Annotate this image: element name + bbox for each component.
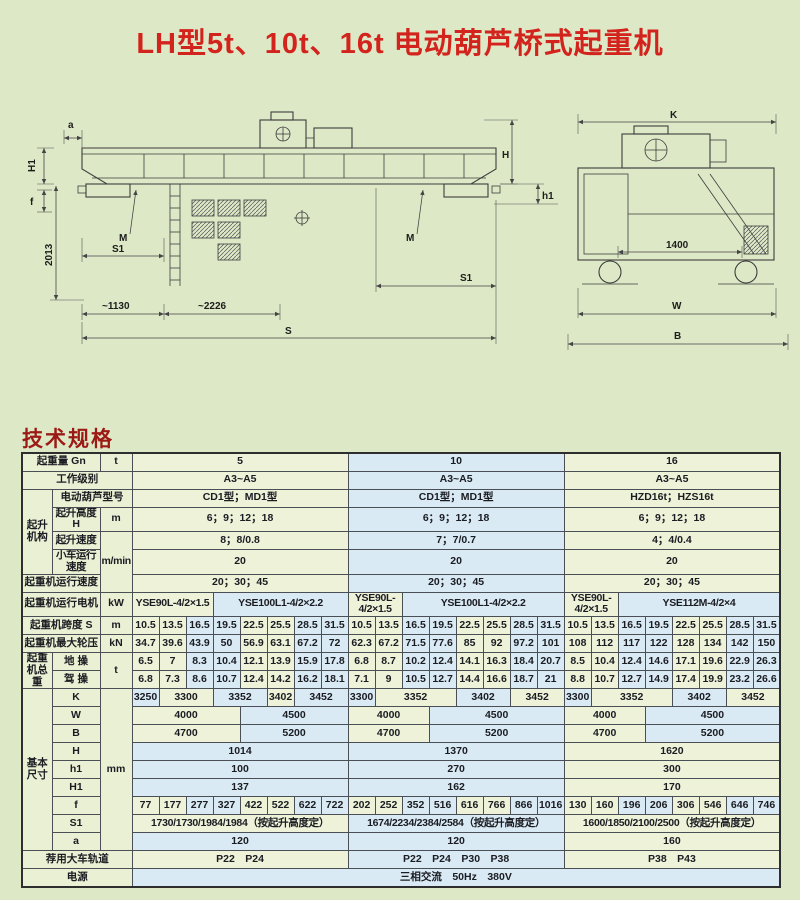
value-cell: 14.2 — [267, 671, 294, 689]
value-cell: 4500 — [645, 707, 780, 725]
row-dim-H1: H1137162170 — [22, 779, 780, 797]
row-dim-K: 基本尺寸Kmm325033003352340234523300335234023… — [22, 689, 780, 707]
value-cell: 26.6 — [753, 671, 780, 689]
crane-side-view-drawing: M M a H1 f 2013 — [24, 108, 561, 366]
label-cell: h1 — [52, 761, 100, 779]
row-dim-B: B470052004700520047005200 — [22, 725, 780, 743]
value-cell: 8；8/0.8 — [132, 532, 348, 550]
value-cell: 16.6 — [483, 671, 510, 689]
value-cell: 28.5 — [294, 617, 321, 635]
m-label-right: M — [406, 233, 414, 244]
end-view-wheels — [582, 261, 774, 284]
value-cell: 15.9 — [294, 653, 321, 671]
value-cell: 8.5 — [564, 653, 591, 671]
dim-label-s1-right: S1 — [460, 273, 473, 284]
value-cell: 306 — [672, 797, 699, 815]
label-cell: 起重量 Gn — [22, 453, 100, 471]
value-cell: 10.2 — [402, 653, 429, 671]
ladder-and-panels — [170, 184, 266, 286]
label-cell: 起升机构 — [22, 489, 52, 574]
value-cell: 67.2 — [375, 635, 402, 653]
row-span: 起重机跨度 Sm10.513.516.519.522.525.528.531.5… — [22, 617, 780, 635]
value-cell: 5200 — [429, 725, 564, 743]
value-cell: 71.5 — [402, 635, 429, 653]
value-cell: 28.5 — [726, 617, 753, 635]
value-cell: 7；7/0.7 — [348, 532, 564, 550]
value-cell: 28.5 — [510, 617, 537, 635]
value-cell: 77 — [132, 797, 159, 815]
value-cell: 100 — [132, 761, 348, 779]
value-cell: 4700 — [348, 725, 429, 743]
row-hoist-model: 起升机构电动葫芦型号CD1型；MD1型CD1型；MD1型HZD16t；HZS16… — [22, 489, 780, 507]
value-cell: 9 — [375, 671, 402, 689]
value-cell: 7.3 — [159, 671, 186, 689]
value-cell: 18.4 — [510, 653, 537, 671]
value-cell: 12.4 — [618, 653, 645, 671]
spec-table: 起重量 Gnt51016工作级别A3~A5A3~A5A3~A5起升机构电动葫芦型… — [21, 452, 781, 888]
dim-label-w: W — [672, 301, 682, 312]
value-cell: 10.4 — [591, 653, 618, 671]
value-cell: 92 — [483, 635, 510, 653]
row-dim-H: H101413701620 — [22, 743, 780, 761]
value-cell: 646 — [726, 797, 753, 815]
value-cell: 3300 — [348, 689, 375, 707]
dimension-B: B — [568, 331, 788, 350]
value-cell: 128 — [672, 635, 699, 653]
unit-cell: m/min — [100, 532, 132, 593]
capacity-5t: 5 — [132, 453, 348, 471]
label-cell: 起重机跨度 S — [22, 617, 100, 635]
dim-label-1400: 1400 — [666, 240, 689, 251]
value-cell: 252 — [375, 797, 402, 815]
label-cell: a — [52, 833, 100, 851]
value-cell: 31.5 — [321, 617, 348, 635]
dimension-H1-left: H1 — [27, 148, 54, 184]
unit-cell: m — [100, 617, 132, 635]
center-mark-icon — [294, 210, 310, 226]
value-cell: 31.5 — [753, 617, 780, 635]
dimension-S: S — [82, 200, 496, 344]
value-cell: 12.7 — [618, 671, 645, 689]
value-cell: 18.1 — [321, 671, 348, 689]
dimension-H: H — [484, 120, 518, 184]
value-cell: 108 — [564, 635, 591, 653]
dim-label-h1-small: h1 — [542, 191, 554, 202]
capacity-10t: 10 — [348, 453, 564, 471]
value-cell: 19.5 — [429, 617, 456, 635]
value-cell: 20 — [132, 550, 348, 575]
value-cell: 4；4/0.4 — [564, 532, 780, 550]
value-cell: 134 — [699, 635, 726, 653]
value-cell: 19.6 — [699, 653, 726, 671]
label-cell: B — [52, 725, 100, 743]
dim-label-b: B — [674, 331, 681, 342]
value-cell: 10.7 — [591, 671, 618, 689]
label-cell: 起升速度 — [52, 532, 100, 550]
row-dim-S1: S11730/1730/1984/1984（按起升高度定）1674/2234/2… — [22, 815, 780, 833]
value-cell: 1730/1730/1984/1984（按起升高度定） — [132, 815, 348, 833]
value-cell: 10.5 — [132, 617, 159, 635]
value-cell: 4700 — [564, 725, 645, 743]
dimension-a: a — [64, 120, 82, 148]
dim-label-s1-left: S1 — [112, 244, 125, 255]
label-cell: W — [52, 707, 100, 725]
value-cell: A3~A5 — [564, 471, 780, 489]
value-cell: 8.7 — [375, 653, 402, 671]
value-cell: 22.5 — [456, 617, 483, 635]
label-cell: 驾 操 — [52, 671, 100, 689]
value-cell: 1016 — [537, 797, 564, 815]
value-cell: 20；30；45 — [564, 574, 780, 592]
value-cell: 6.5 — [132, 653, 159, 671]
value-cell: A3~A5 — [348, 471, 564, 489]
value-cell: 62.3 — [348, 635, 375, 653]
dimension-h1-small: h1 — [494, 184, 558, 204]
label-cell: 荐用大车轨道 — [22, 851, 132, 869]
value-cell: 17.4 — [672, 671, 699, 689]
label-cell: 工作级别 — [22, 471, 132, 489]
value-cell: 3300 — [564, 689, 591, 707]
value-cell: 327 — [213, 797, 240, 815]
value-cell: 3402 — [672, 689, 726, 707]
value-cell: 10.5 — [348, 617, 375, 635]
unit-cell: kN — [100, 635, 132, 653]
value-cell: 10.7 — [213, 671, 240, 689]
value-cell: 196 — [618, 797, 645, 815]
value-cell: 3402 — [267, 689, 294, 707]
value-cell: 746 — [753, 797, 780, 815]
value-cell: 10.4 — [213, 653, 240, 671]
value-cell: 67.2 — [294, 635, 321, 653]
value-cell: 142 — [726, 635, 753, 653]
label-cell: 基本尺寸 — [22, 689, 52, 851]
value-cell: 22.5 — [672, 617, 699, 635]
value-cell: 4700 — [132, 725, 240, 743]
value-cell: 19.5 — [213, 617, 240, 635]
value-cell: 722 — [321, 797, 348, 815]
value-cell: 5200 — [240, 725, 348, 743]
value-cell: YSE112M-4/2×4 — [618, 592, 780, 617]
label-cell: K — [52, 689, 100, 707]
value-cell: YSE90L-4/2×1.5 — [348, 592, 402, 617]
value-cell: 12.1 — [240, 653, 267, 671]
value-cell: 6；9；12；18 — [564, 507, 780, 532]
dimension-K: K — [578, 110, 776, 134]
technical-drawings: M M a H1 f 2013 — [0, 108, 800, 373]
value-cell: A3~A5 — [132, 471, 348, 489]
value-cell: 3452 — [726, 689, 780, 707]
value-cell: 3402 — [456, 689, 510, 707]
bridge-girder — [82, 148, 496, 184]
unit-cell: mm — [100, 689, 132, 851]
value-cell: 8.8 — [564, 671, 591, 689]
m-mark-left: M — [119, 190, 136, 244]
value-cell: 5200 — [645, 725, 780, 743]
end-view-hoist — [622, 126, 726, 168]
value-cell: 17.1 — [672, 653, 699, 671]
value-cell: YSE90L-4/2×1.5 — [564, 592, 618, 617]
value-cell: 19.5 — [645, 617, 672, 635]
row-dim-f: f771772773274225226227222022523525166167… — [22, 797, 780, 815]
value-cell: 22.9 — [726, 653, 753, 671]
unit-cell: m — [100, 507, 132, 532]
value-cell: 162 — [348, 779, 564, 797]
value-cell: 120 — [132, 833, 348, 851]
value-cell: 117 — [618, 635, 645, 653]
value-cell: 4500 — [429, 707, 564, 725]
value-cell: 6.8 — [348, 653, 375, 671]
dim-label-k: K — [670, 110, 678, 121]
value-cell: 14.1 — [456, 653, 483, 671]
row-rail: 荐用大车轨道P22 P24P22 P24 P30 P38P38 P43 — [22, 851, 780, 869]
value-cell: YSE100L1-4/2×2.2 — [402, 592, 564, 617]
dim-label-s: S — [285, 326, 292, 337]
value-cell: 3352 — [375, 689, 456, 707]
value-cell: 16.2 — [294, 671, 321, 689]
value-cell: 13.5 — [375, 617, 402, 635]
dimension-S1-right: S1 — [376, 188, 496, 292]
section-title: 技术规格 — [22, 423, 114, 453]
label-cell: H1 — [52, 779, 100, 797]
value-cell: 4000 — [564, 707, 645, 725]
value-cell: 20；30；45 — [348, 574, 564, 592]
dim-label-h: H — [502, 150, 509, 161]
value-cell: 1620 — [564, 743, 780, 761]
value-cell: 137 — [132, 779, 348, 797]
value-cell: 12.4 — [429, 653, 456, 671]
value-cell: 522 — [267, 797, 294, 815]
value-cell: 13.9 — [267, 653, 294, 671]
crane-end-view-drawing: K 1400 — [562, 108, 794, 366]
value-cell: 3300 — [159, 689, 213, 707]
value-cell: 43.9 — [186, 635, 213, 653]
value-cell: 1600/1850/2100/2500（按起升高度定） — [564, 815, 780, 833]
capacity-16t: 16 — [564, 453, 780, 471]
value-cell: YSE90L-4/2×1.5 — [132, 592, 213, 617]
value-cell: 6；9；12；18 — [132, 507, 348, 532]
value-cell: 160 — [591, 797, 618, 815]
value-cell: 4500 — [240, 707, 348, 725]
value-cell: 10.5 — [402, 671, 429, 689]
value-cell: 三相交流 50Hz 380V — [132, 869, 780, 887]
row-lift-speed: 起升速度m/min8；8/0.87；7/0.74；4/0.4 — [22, 532, 780, 550]
value-cell: 12.7 — [429, 671, 456, 689]
value-cell: 14.4 — [456, 671, 483, 689]
row-dim-W: W400045004000450040004500 — [22, 707, 780, 725]
value-cell: 300 — [564, 761, 780, 779]
value-cell: 25.5 — [699, 617, 726, 635]
value-cell: 277 — [186, 797, 213, 815]
value-cell: 26.3 — [753, 653, 780, 671]
value-cell: YSE100L1-4/2×2.2 — [213, 592, 348, 617]
value-cell: 16.5 — [402, 617, 429, 635]
value-cell: 3352 — [591, 689, 672, 707]
row-trolley-speed: 小车运行速度202020 — [22, 550, 780, 575]
value-cell: 16.3 — [483, 653, 510, 671]
dimension-1400: 1400 — [618, 240, 742, 258]
unit-cell: t — [100, 653, 132, 689]
value-cell: 16.5 — [186, 617, 213, 635]
value-cell: 72 — [321, 635, 348, 653]
value-cell: 6；9；12；18 — [348, 507, 564, 532]
value-cell: 23.2 — [726, 671, 753, 689]
value-cell: 63.1 — [267, 635, 294, 653]
value-cell: 31.5 — [537, 617, 564, 635]
value-cell: 12.4 — [240, 671, 267, 689]
value-cell: 352 — [402, 797, 429, 815]
value-cell: 546 — [699, 797, 726, 815]
row-dim-a: a120120160 — [22, 833, 780, 851]
value-cell: 39.6 — [159, 635, 186, 653]
value-cell: 516 — [429, 797, 456, 815]
row-power: 电源三相交流 50Hz 380V — [22, 869, 780, 887]
value-cell: 25.5 — [267, 617, 294, 635]
value-cell: 1014 — [132, 743, 348, 761]
value-cell: 177 — [159, 797, 186, 815]
value-cell: 20；30；45 — [132, 574, 348, 592]
unit-cell: kW — [100, 592, 132, 617]
value-cell: 130 — [564, 797, 591, 815]
row-duty-class: 工作级别A3~A5A3~A5A3~A5 — [22, 471, 780, 489]
dimension-2226: ~2226 — [164, 301, 280, 320]
dim-label-f: f — [30, 197, 34, 208]
value-cell: 85 — [456, 635, 483, 653]
value-cell: 866 — [510, 797, 537, 815]
value-cell: 622 — [294, 797, 321, 815]
value-cell: 14.9 — [645, 671, 672, 689]
value-cell: 1370 — [348, 743, 564, 761]
value-cell: 17.8 — [321, 653, 348, 671]
value-cell: 97.2 — [510, 635, 537, 653]
value-cell: 50 — [213, 635, 240, 653]
value-cell: 34.7 — [132, 635, 159, 653]
unit-cell: t — [100, 453, 132, 471]
row-total-weight-ground: 起重机总重地 操t6.578.310.412.113.915.917.86.88… — [22, 653, 780, 671]
dimension-W: W — [578, 288, 776, 318]
value-cell: 8.3 — [186, 653, 213, 671]
value-cell: 1674/2234/2384/2584（按起升高度定） — [348, 815, 564, 833]
value-cell: 6.8 — [132, 671, 159, 689]
value-cell: 3452 — [294, 689, 348, 707]
value-cell: 20.7 — [537, 653, 564, 671]
dimension-2013: 2013 — [44, 186, 84, 300]
value-cell: 120 — [348, 833, 564, 851]
value-cell: 4000 — [132, 707, 240, 725]
dim-label-2013: 2013 — [44, 243, 55, 266]
value-cell: 101 — [537, 635, 564, 653]
label-cell: 起重机运行速度 — [22, 574, 100, 592]
hoist-trolley — [260, 112, 352, 148]
value-cell: 206 — [645, 797, 672, 815]
value-cell: 16.5 — [618, 617, 645, 635]
value-cell: CD1型；MD1型 — [348, 489, 564, 507]
label-cell: S1 — [52, 815, 100, 833]
label-cell: H — [52, 743, 100, 761]
dim-label-1130: ~1130 — [102, 301, 130, 312]
value-cell: HZD16t；HZS16t — [564, 489, 780, 507]
value-cell: 20 — [564, 550, 780, 575]
value-cell: P38 P43 — [564, 851, 780, 869]
value-cell: 13.5 — [159, 617, 186, 635]
value-cell: 22.5 — [240, 617, 267, 635]
value-cell: 8.6 — [186, 671, 213, 689]
value-cell: 13.5 — [591, 617, 618, 635]
value-cell: 7 — [159, 653, 186, 671]
label-cell: 小车运行速度 — [52, 550, 100, 575]
row-crane-speed: 起重机运行速度20；30；4520；30；4520；30；45 — [22, 574, 780, 592]
value-cell: 112 — [591, 635, 618, 653]
value-cell: P22 P24 — [132, 851, 348, 869]
value-cell: 766 — [483, 797, 510, 815]
value-cell: 7.1 — [348, 671, 375, 689]
value-cell: 3250 — [132, 689, 159, 707]
dim-label-2226: ~2226 — [198, 301, 227, 312]
value-cell: 14.6 — [645, 653, 672, 671]
row-lift-height: 起升高度Hm6；9；12；186；9；12；186；9；12；18 — [22, 507, 780, 532]
value-cell: 10.5 — [564, 617, 591, 635]
label-cell: 起重机最大轮压 — [22, 635, 100, 653]
value-cell: CD1型；MD1型 — [132, 489, 348, 507]
dimension-f: f — [30, 190, 52, 212]
value-cell: 616 — [456, 797, 483, 815]
label-cell: 地 操 — [52, 653, 100, 671]
row-travel-motor: 起重机运行电机kWYSE90L-4/2×1.5YSE100L1-4/2×2.2Y… — [22, 592, 780, 617]
value-cell: 77.6 — [429, 635, 456, 653]
value-cell: 3452 — [510, 689, 564, 707]
dim-label-H1: H1 — [27, 159, 38, 172]
label-cell: 起重机运行电机 — [22, 592, 100, 617]
label-cell: 电动葫芦型号 — [52, 489, 132, 507]
value-cell: 20 — [348, 550, 564, 575]
value-cell: 202 — [348, 797, 375, 815]
value-cell: 422 — [240, 797, 267, 815]
m-mark-right: M — [406, 190, 423, 244]
m-label-left: M — [119, 233, 127, 244]
row-max-wheel-load: 起重机最大轮压kN34.739.643.95056.963.167.27262.… — [22, 635, 780, 653]
value-cell: 19.9 — [699, 671, 726, 689]
page-title: LH型5t、10t、16t 电动葫芦桥式起重机 — [0, 20, 800, 62]
value-cell: 160 — [564, 833, 780, 851]
dim-label-a: a — [68, 120, 74, 131]
catalog-page: { "page": { "title": "LH型5t、10t、16t 电动葫芦… — [0, 0, 800, 900]
row-total-weight-cab: 驾 操6.87.38.610.712.414.216.218.17.1910.5… — [22, 671, 780, 689]
value-cell: 18.7 — [510, 671, 537, 689]
value-cell: 25.5 — [483, 617, 510, 635]
value-cell: P22 P24 P30 P38 — [348, 851, 564, 869]
value-cell: 3352 — [213, 689, 267, 707]
value-cell: 270 — [348, 761, 564, 779]
value-cell: 122 — [645, 635, 672, 653]
label-cell: 起升高度H — [52, 507, 100, 532]
value-cell: 4000 — [348, 707, 429, 725]
row-dim-h1: h1100270300 — [22, 761, 780, 779]
label-cell: 起重机总重 — [22, 653, 52, 689]
value-cell: 150 — [753, 635, 780, 653]
value-cell: 21 — [537, 671, 564, 689]
value-cell: 56.9 — [240, 635, 267, 653]
dimension-1130: ~1130 — [82, 301, 164, 320]
end-trucks — [78, 184, 500, 197]
label-cell: f — [52, 797, 100, 815]
label-cell: 电源 — [22, 869, 132, 887]
row-capacity: 起重量 Gnt51016 — [22, 453, 780, 471]
value-cell: 170 — [564, 779, 780, 797]
